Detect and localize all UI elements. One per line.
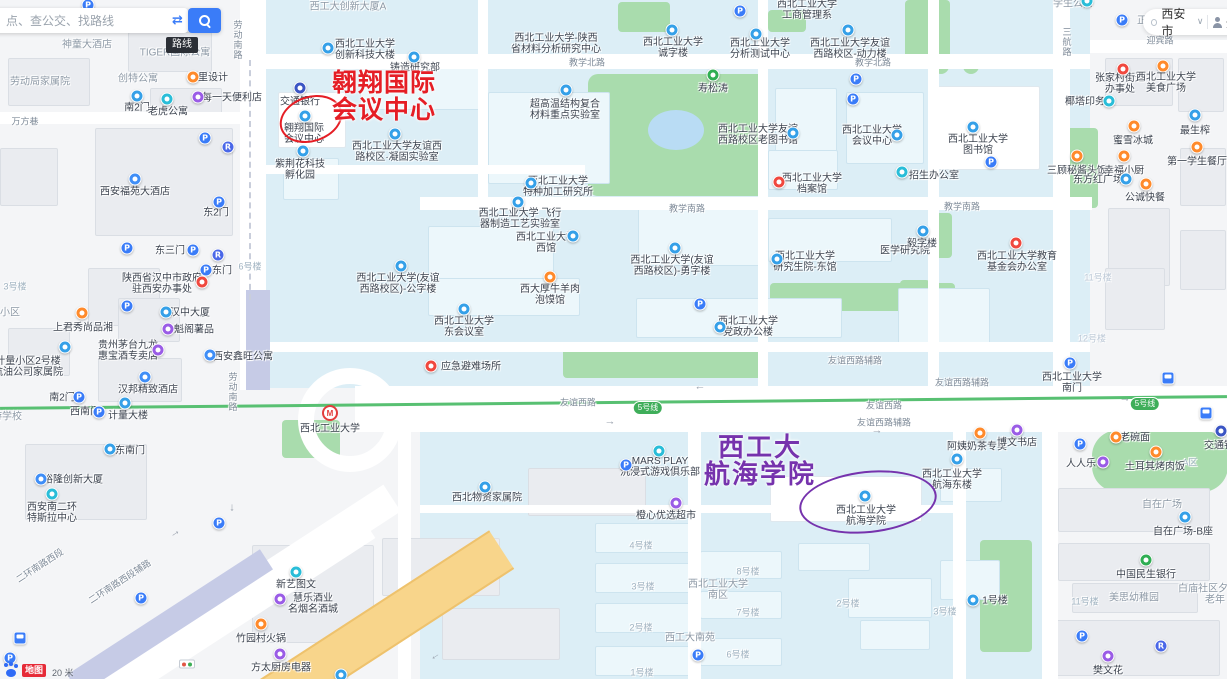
map-label-poi[interactable]: 紫荆花科技 孵化园 — [275, 159, 325, 181]
map-label-bld: 6号楼 — [238, 262, 261, 273]
map-label-area: 美思幼稚园 — [1109, 593, 1159, 604]
poi-icon[interactable] — [1081, 0, 1094, 8]
poi-icon[interactable] — [560, 84, 573, 97]
chevron-down-icon: ∨ — [1197, 17, 1204, 27]
map-label-poi[interactable]: 老碗面 — [1120, 433, 1150, 444]
map-label-poi[interactable]: 西北工业大学 东会议室 — [434, 316, 494, 338]
map-label-arr: → — [872, 426, 883, 437]
parking-icon[interactable]: P — [1064, 357, 1077, 370]
map-label-poi[interactable]: 贵州茅台九龙 惠宝酒专卖店 — [98, 340, 158, 362]
poi-icon[interactable] — [1215, 425, 1227, 438]
map-label-bld: 2号楼 — [836, 599, 859, 610]
bus-stop-icon[interactable] — [14, 632, 27, 645]
map-label-poi[interactable]: 寿松涛 — [698, 84, 728, 95]
poi-icon[interactable] — [294, 82, 307, 95]
map-label-road: 教学北路 — [569, 58, 605, 69]
poi-icon[interactable] — [544, 271, 557, 284]
parking-icon[interactable]: P — [847, 93, 860, 106]
map-label-fnt: 11号楼 — [1084, 273, 1111, 284]
city-selector[interactable]: 西安市 ∨ 登 — [1143, 9, 1227, 35]
search-input[interactable] — [0, 8, 167, 33]
poi-icon[interactable] — [290, 566, 303, 579]
map-label-road: 友谊西路 — [560, 398, 596, 409]
poi-icon[interactable] — [322, 42, 335, 55]
map-label-poi[interactable]: 西北工业大学 档案馆 — [782, 173, 842, 195]
map-label-rv: 劳动南路 — [227, 372, 238, 412]
parking-icon[interactable]: P — [93, 406, 106, 419]
poi-icon[interactable] — [1189, 109, 1202, 122]
parking-icon[interactable]: P — [199, 132, 212, 145]
map-label-poi[interactable]: 西安南二环 特斯拉中心 — [27, 502, 77, 524]
bike-share-icon[interactable]: R — [1155, 640, 1168, 653]
poi-icon[interactable] — [1179, 511, 1192, 524]
bike-share-icon[interactable]: R — [212, 249, 225, 262]
poi-icon[interactable] — [896, 166, 909, 179]
map-label-poi[interactable]: 西安福苑大酒店 — [100, 187, 170, 198]
map-label-poi[interactable]: 最生榨 — [1180, 126, 1210, 137]
map-label-poi[interactable]: 自在广场-B座 — [1153, 527, 1213, 538]
poi-icon[interactable] — [669, 242, 682, 255]
poi-icon[interactable] — [192, 91, 205, 104]
poi-icon[interactable] — [35, 473, 48, 486]
annotation-line: 航海学院 — [704, 461, 816, 488]
map-label-area: 自在广场 — [1142, 500, 1182, 511]
poi-icon[interactable] — [1117, 63, 1130, 76]
map-label-poi[interactable]: 应急避难场所 — [441, 362, 501, 373]
baidu-paw-icon — [4, 663, 19, 677]
map-label-poi[interactable]: 西北工业大学 南门 — [1042, 372, 1102, 394]
city-name[interactable]: 西安市 — [1161, 5, 1193, 39]
parking-icon[interactable]: P — [135, 592, 148, 605]
parking-icon[interactable]: P — [1074, 438, 1087, 451]
map-label-area: 老年 — [1205, 595, 1225, 606]
map-label-poi[interactable]: 中国民生银行 — [1116, 570, 1176, 581]
poi-icon[interactable] — [425, 360, 438, 373]
poi-icon[interactable] — [408, 51, 421, 64]
map-label-bld: 7号楼 — [736, 608, 759, 619]
map-label-bld: 3号楼 — [933, 607, 956, 618]
map-label-poi[interactable]: 西北工业大学(友谊 西路校区)-公字楼 — [356, 273, 439, 295]
poi-icon[interactable] — [297, 145, 310, 158]
poi-icon[interactable] — [255, 618, 268, 631]
parking-icon[interactable]: P — [73, 391, 86, 404]
poi-icon[interactable] — [1118, 150, 1131, 163]
parking-icon[interactable]: P — [121, 300, 134, 313]
search-icon — [199, 15, 211, 27]
map-label-poi[interactable]: 橙心优选超市 — [636, 511, 696, 522]
map-label-poi[interactable]: 计量小区2号楼 航油公司家属院 — [0, 356, 63, 378]
map-label-poi[interactable]: 西北工业大学 党政办公楼 — [718, 316, 778, 338]
parking-icon[interactable]: P — [850, 73, 863, 86]
poi-icon[interactable] — [458, 303, 471, 316]
map-label-poi[interactable]: 慧乐酒业 名烟名酒城 — [288, 593, 338, 615]
map-label-poi[interactable]: 西北工业大学 诚字楼 — [643, 37, 703, 59]
map-label-poi[interactable]: 计量大楼 — [108, 411, 148, 422]
map-label-poi[interactable]: 交通银行 — [1204, 441, 1227, 452]
map-canvas[interactable]: 劳动南路劳动南路万方巷教学北路教学北路教学南路教学南路友谊西路友谊西路友谊西路辅… — [0, 0, 1227, 679]
map-label-poi[interactable]: 老虎公寓 — [148, 107, 188, 118]
annotation-line: 西工大 — [704, 434, 816, 461]
map-label-poi[interactable]: 土耳其烤肉饭 — [1125, 462, 1185, 473]
poi-icon[interactable] — [714, 321, 727, 334]
map-label-poi[interactable]: 上君秀尚品湘 — [53, 323, 113, 334]
poi-icon[interactable] — [274, 648, 287, 661]
map-label-bld: 3号楼 — [3, 282, 26, 293]
user-icon[interactable] — [1212, 17, 1222, 28]
poi-icon[interactable] — [204, 349, 217, 362]
map-label-area: 白庙社区夕阳红 — [1178, 584, 1227, 595]
map-label-poi[interactable]: 西北工业大学友谊西 路校区·凝固实验室 — [352, 141, 442, 163]
poi-icon[interactable] — [335, 669, 348, 679]
poi-icon[interactable] — [1128, 120, 1141, 133]
parking-icon[interactable]: P — [694, 298, 707, 311]
poi-icon[interactable] — [1150, 446, 1163, 459]
map-scale: 20 米 — [52, 666, 84, 679]
poi-icon[interactable] — [160, 306, 173, 319]
map-label-poi[interactable]: 西北工业大学 — [300, 424, 360, 435]
map-label-poi[interactable]: 东门 — [212, 266, 232, 277]
poi-icon[interactable] — [131, 90, 144, 103]
map-label-bld: 6号楼 — [726, 650, 749, 661]
poi-icon[interactable] — [479, 481, 492, 494]
map-label-poi[interactable]: 西北工业大学 创新科技大楼 — [335, 39, 395, 61]
poi-icon[interactable] — [1103, 95, 1116, 108]
map-label-bld: 2号楼 — [629, 623, 652, 634]
map-label-poi[interactable]: 西北工业大学-陕西 省材料分析研究中心 — [511, 33, 601, 55]
poi-icon[interactable] — [567, 230, 580, 243]
poi-icon[interactable] — [1110, 431, 1123, 444]
map-label-poi[interactable]: 蜜雪冰城 — [1113, 136, 1153, 147]
map-label-arr: → — [605, 417, 616, 428]
bus-stop-icon[interactable] — [1200, 407, 1213, 420]
search-bar[interactable]: ⇄ — [0, 8, 188, 33]
map-label-poi[interactable]: 超高温结构复合 材料重点实验室 — [530, 99, 600, 121]
map-label-poi[interactable]: 裕隆创新大厦 — [43, 475, 103, 486]
map-label-poi[interactable]: 新艺图文 — [276, 580, 316, 591]
map-label-poi[interactable]: 东三门 — [155, 246, 185, 257]
route-tooltip: 路线 — [166, 37, 198, 53]
poi-icon[interactable] — [196, 276, 209, 289]
map-label-road: 友谊西路辅路 — [935, 378, 989, 389]
poi-icon[interactable] — [1191, 141, 1204, 154]
map-label-poi[interactable]: 博文书店 — [997, 438, 1037, 449]
map-label-area: 神童大酒店 — [62, 40, 112, 51]
map-label-poi[interactable]: 西北物资家属院 — [452, 493, 522, 504]
map-label-bld: 11号楼 — [1071, 597, 1098, 608]
poi-icon[interactable] — [162, 323, 175, 336]
poi-icon[interactable] — [653, 445, 666, 458]
map-brand-badge: 地图 — [22, 664, 46, 677]
poi-icon[interactable] — [1097, 456, 1110, 469]
poi-icon[interactable] — [787, 127, 800, 140]
search-button[interactable] — [188, 8, 221, 33]
map-label-poi[interactable]: 西大厚牛羊肉 泡馍馆 — [520, 284, 580, 306]
map-label-poi[interactable]: 南2门 — [49, 393, 75, 404]
map-label-rv: 劳动南路 — [232, 20, 243, 60]
map-label-area: 西工大南苑 — [665, 633, 715, 644]
poi-icon[interactable] — [1010, 237, 1023, 250]
map-label-poi[interactable]: 西北工业大学友谊 西路校区-动力楼 — [810, 38, 890, 60]
parking-icon[interactable]: P — [1116, 14, 1129, 27]
map-label-poi[interactable]: 毅字楼 — [907, 239, 937, 250]
poi-icon[interactable] — [1140, 178, 1153, 191]
map-label-poi[interactable]: 西北工业大学教育 基金会办公室 — [977, 251, 1057, 273]
bus-stop-icon[interactable] — [1162, 372, 1175, 385]
map-label-fnt: 12号楼 — [1078, 334, 1106, 345]
poi-icon[interactable] — [274, 593, 287, 606]
map-label-poi[interactable]: 西北工业大学 图书馆 — [948, 134, 1008, 156]
location-dot-icon — [1151, 19, 1157, 26]
metro-station-icon[interactable]: M — [322, 405, 338, 421]
poi-icon[interactable] — [842, 24, 855, 37]
poi-icon[interactable] — [1102, 650, 1115, 663]
poi-icon[interactable] — [1071, 150, 1084, 163]
map-label-poi[interactable]: 竹园村火锅 — [236, 634, 286, 645]
map-label-poi[interactable]: 汉中大厦 — [170, 308, 210, 319]
poi-icon[interactable] — [525, 177, 538, 190]
poi-icon[interactable] — [59, 341, 72, 354]
poi-icon[interactable] — [1120, 173, 1133, 186]
map-label-poi[interactable]: 1号楼 — [982, 596, 1008, 607]
poi-icon[interactable] — [917, 225, 930, 238]
parking-icon[interactable]: P — [620, 459, 633, 472]
divider — [1207, 15, 1208, 29]
map-label-area: 西工大创新大厦A — [310, 2, 387, 13]
poi-icon[interactable] — [46, 488, 59, 501]
map-label-area: 西北工业大学 南区 — [688, 579, 748, 601]
map-label-poi[interactable]: 陕西省汉中市政府 驻西安办事处 — [122, 273, 202, 295]
poi-icon[interactable] — [1140, 554, 1153, 567]
map-label-poi[interactable]: 东2门 — [203, 208, 229, 219]
poi-icon[interactable] — [119, 397, 132, 410]
poi-icon[interactable] — [707, 69, 720, 82]
map-label-poi[interactable]: 方太厨房电器 — [251, 663, 311, 674]
annotation-conference-center: 翱翔国际 会议中心 — [332, 70, 436, 124]
map-label-poi[interactable]: 第一学生餐厅 — [1167, 157, 1227, 168]
map-label-poi[interactable]: 西北工业大学 分析测试中心 — [730, 38, 790, 60]
scale-label: 20 米 — [52, 668, 74, 678]
map-label-road: 二环南路西段 — [14, 547, 65, 586]
poi-icon[interactable] — [666, 24, 679, 37]
map-label-bld: 8号楼 — [736, 567, 759, 578]
map-label-poi[interactable]: 招生办公室 — [909, 171, 959, 182]
map-label-arr: ← — [695, 382, 706, 393]
poi-icon[interactable] — [967, 121, 980, 134]
map-label-rv: 三航路 — [1061, 27, 1072, 57]
poi-icon[interactable] — [670, 497, 683, 510]
map-label-poi[interactable]: 东南门 — [115, 446, 145, 457]
parking-icon[interactable]: P — [187, 244, 200, 257]
map-label-area: 劳动局家属院 — [10, 77, 70, 88]
map-label-poi[interactable]: 西北工业大学 工商管理系 — [777, 0, 837, 21]
poi-icon[interactable] — [139, 371, 152, 384]
poi-icon[interactable] — [773, 176, 786, 189]
annotation-line: 会议中心 — [332, 97, 436, 124]
parking-icon[interactable]: P — [985, 156, 998, 169]
poi-icon[interactable] — [967, 594, 980, 607]
map-label-poi[interactable]: 椰塔印务 — [1065, 97, 1105, 108]
map-label-arr: → — [167, 525, 182, 540]
poi-icon[interactable] — [129, 173, 142, 186]
map-label-arr: ↓ — [229, 503, 235, 514]
poi-icon[interactable] — [891, 129, 904, 142]
map-label-poi[interactable]: 人人乐 — [1066, 459, 1096, 470]
parking-icon[interactable]: P — [121, 242, 134, 255]
map-label-road: 友谊西路辅路 — [828, 356, 882, 367]
poi-icon[interactable] — [76, 307, 89, 320]
traffic-light-icon — [179, 660, 195, 669]
map-label-poi[interactable]: 公诚快餐 — [1125, 193, 1165, 204]
poi-icon[interactable] — [395, 260, 408, 273]
map-provider-logo: 地图 — [4, 663, 46, 677]
map-label-road: 万方巷 — [11, 117, 38, 128]
parking-icon[interactable]: P — [692, 649, 705, 662]
poi-icon[interactable] — [104, 443, 117, 456]
map-label-poi[interactable]: 东方红广场 — [1073, 175, 1123, 186]
annotation-line: 翱翔国际 — [332, 70, 436, 97]
map-label-poi[interactable]: 樊文花 — [1093, 666, 1123, 677]
map-label-area: 计量小区 — [0, 308, 20, 319]
poi-icon[interactable] — [512, 196, 525, 209]
map-label-road: 教学南路 — [669, 204, 705, 215]
annotation-navigation-college: 西工大 航海学院 — [704, 434, 816, 488]
poi-icon[interactable] — [389, 128, 402, 141]
poi-icon[interactable] — [1011, 424, 1024, 437]
parking-icon[interactable]: P — [213, 196, 226, 209]
map-label-poi[interactable]: 西北工业大学 飞行 器制造工艺实验室 — [479, 208, 562, 230]
poi-icon[interactable] — [152, 344, 165, 357]
poi-icon[interactable] — [951, 453, 964, 466]
map-label-bld: 4号楼 — [629, 541, 652, 552]
map-label-poi[interactable]: 每一天便利店 — [202, 93, 262, 104]
metro-line-badge[interactable]: 5号线 — [633, 401, 663, 415]
poi-icon[interactable] — [771, 253, 784, 266]
map-label-road: 友谊西路 — [866, 401, 902, 412]
poi-icon[interactable] — [187, 71, 200, 84]
map-label-poi[interactable]: 西北工业大学 美食广场 — [1136, 72, 1196, 94]
map-label-poi[interactable]: 南2门 — [124, 103, 150, 114]
map-label-area: 创特公寓 — [118, 74, 158, 85]
poi-icon[interactable] — [161, 93, 174, 106]
parking-icon[interactable]: P — [1076, 630, 1089, 643]
map-label-road: 教学南路 — [944, 202, 980, 213]
map-label-poi[interactable]: 汉邦精致酒店 — [118, 385, 178, 396]
map-label-bld: 3号楼 — [631, 582, 654, 593]
map-label-poi[interactable]: 西安鑫旺公寓 — [213, 352, 273, 363]
parking-icon[interactable]: P — [734, 5, 747, 18]
metro-line-badge[interactable]: 5号线 — [1130, 397, 1160, 411]
poi-icon[interactable] — [974, 427, 987, 440]
poi-icon[interactable] — [1157, 60, 1170, 73]
route-icon[interactable]: ⇄ — [167, 10, 188, 31]
poi-icon[interactable] — [750, 28, 763, 41]
parking-icon[interactable]: P — [213, 517, 226, 530]
map-label-area: 旅游学校 — [0, 412, 22, 423]
map-label-bld: 1号楼 — [630, 668, 653, 679]
bike-share-icon[interactable]: R — [222, 141, 235, 154]
map-label-road: 友谊西路辅路 — [857, 418, 911, 429]
map-label-poi[interactable]: 魁阁薯品 — [174, 325, 214, 336]
map-label-poi[interactable]: 西北工业大学(友谊 西路校区)-勇字楼 — [630, 255, 713, 277]
